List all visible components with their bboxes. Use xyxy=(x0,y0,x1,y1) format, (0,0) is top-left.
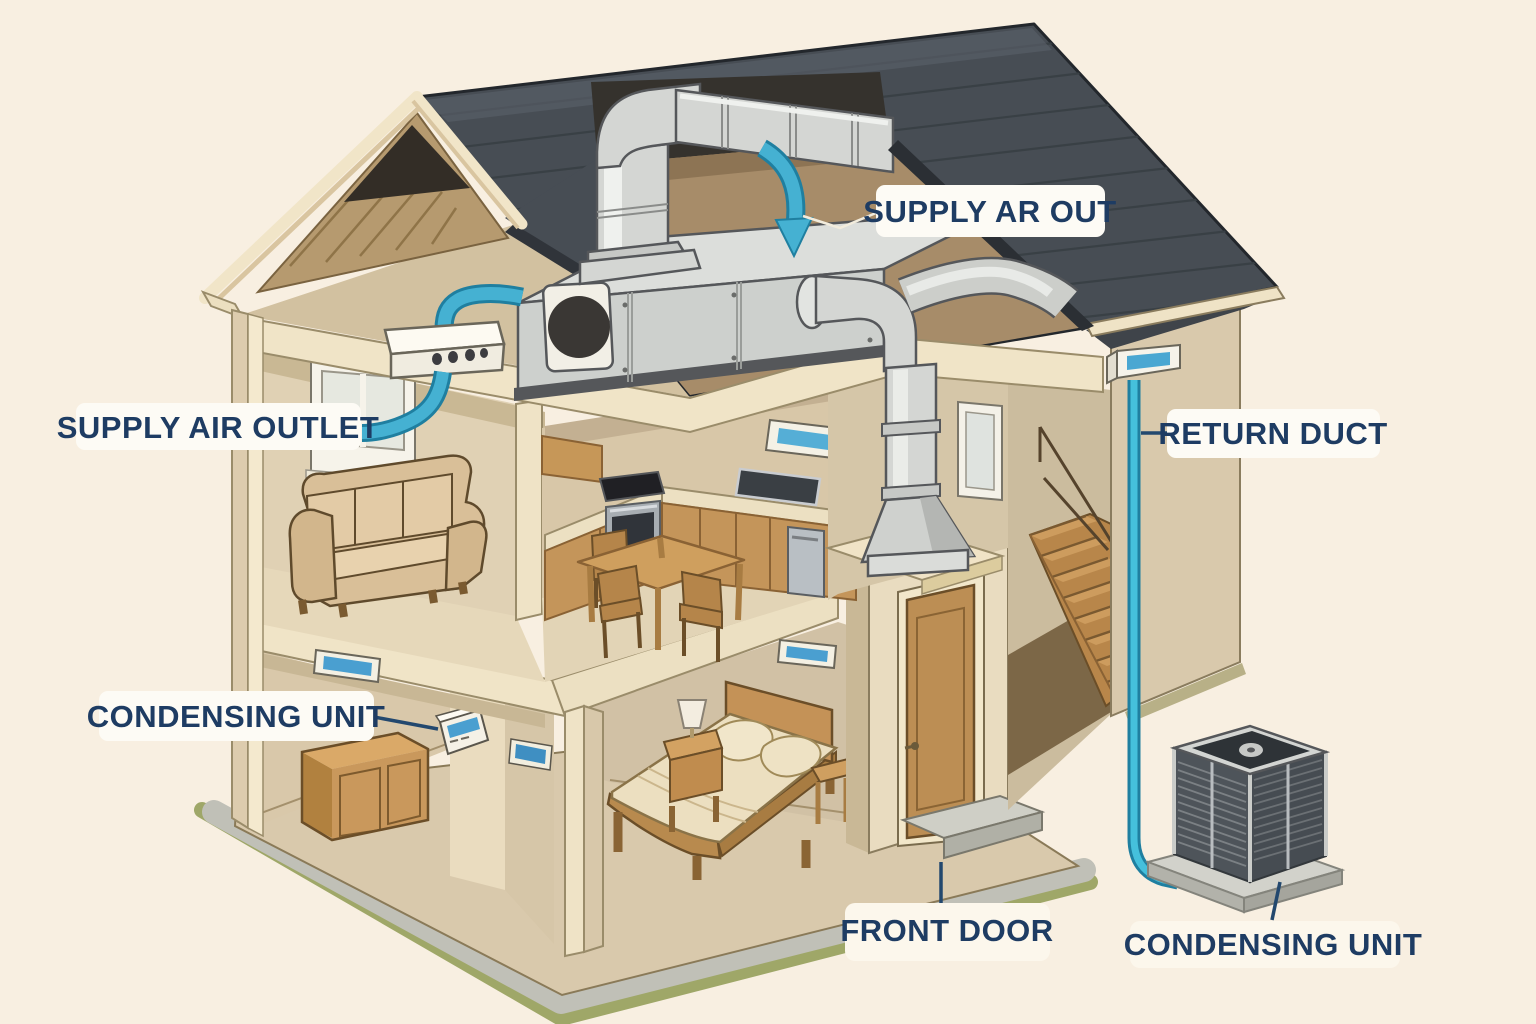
svg-text:CONDENSING UNIT: CONDENSING UNIT xyxy=(1124,927,1423,962)
svg-text:SUPPLY AR OUT: SUPPLY AR OUT xyxy=(863,194,1116,229)
svg-text:CONDENSING UNIT: CONDENSING UNIT xyxy=(87,699,386,734)
svg-text:RETURN DUCT: RETURN DUCT xyxy=(1158,416,1387,451)
svg-text:FRONT DOOR: FRONT DOOR xyxy=(840,913,1053,948)
svg-text:SUPPLY AIR OUTLET: SUPPLY AIR OUTLET xyxy=(57,410,380,445)
